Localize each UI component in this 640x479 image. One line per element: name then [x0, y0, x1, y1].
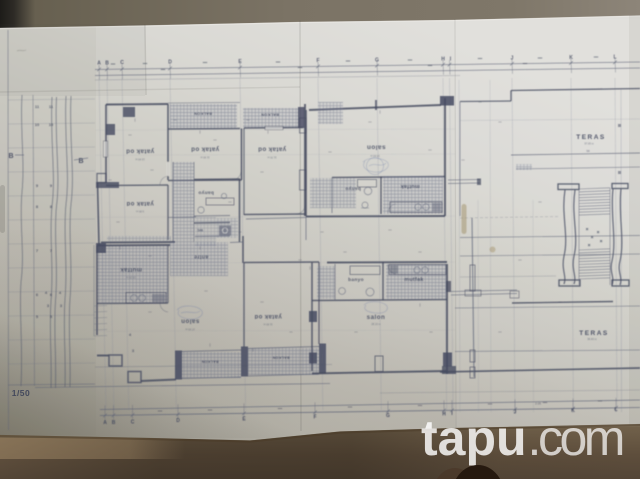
svg-text:TERAS: TERAS: [576, 134, 606, 141]
svg-text:H: H: [441, 57, 445, 63]
svg-text:36.40 m: 36.40 m: [587, 337, 596, 341]
svg-text:B: B: [8, 153, 13, 160]
svg-text:yatak od: yatak od: [258, 146, 286, 153]
svg-text:BALKON: BALKON: [194, 111, 212, 115]
svg-text:A: A: [97, 61, 101, 67]
svg-text:K: K: [569, 55, 573, 61]
svg-text:D: D: [176, 418, 180, 424]
svg-text:12.40 m: 12.40 m: [135, 158, 144, 162]
svg-text:F: F: [313, 415, 316, 421]
svg-text:D: D: [168, 60, 172, 66]
svg-text:10: 10: [49, 122, 54, 127]
svg-text:G: G: [375, 57, 379, 63]
svg-text:L: L: [613, 55, 616, 61]
svg-text:banyo: banyo: [198, 190, 214, 196]
svg-text:F: F: [316, 58, 319, 64]
svg-text:C: C: [131, 419, 135, 425]
svg-text:banyo: banyo: [345, 186, 361, 192]
svg-text:B: B: [105, 60, 109, 66]
svg-text:yatak od: yatak od: [126, 200, 154, 206]
svg-text:11.70 m: 11.70 m: [267, 156, 276, 160]
svg-text:10.20 m: 10.20 m: [126, 276, 135, 280]
svg-text:mutfak: mutfak: [400, 183, 419, 189]
svg-text:banyo: banyo: [348, 277, 364, 283]
svg-text:9.80 m: 9.80 m: [136, 210, 144, 214]
svg-text:antre: antre: [194, 253, 209, 259]
svg-text:1/50: 1/50: [12, 388, 31, 398]
svg-text:BALKON: BALKON: [272, 355, 289, 359]
svg-text:58: 58: [586, 149, 590, 153]
svg-text:J: J: [511, 56, 514, 62]
svg-text:27.80 m: 27.80 m: [185, 328, 194, 332]
svg-text:yatak od: yatak od: [191, 146, 219, 153]
svg-text:mutfak: mutfak: [404, 277, 423, 283]
svg-text:yatak od: yatak od: [126, 148, 154, 155]
svg-text:37.05 m: 37.05 m: [584, 142, 593, 146]
svg-text:TERAS: TERAS: [579, 330, 609, 337]
svg-text:salon: salon: [367, 314, 386, 321]
svg-text:11.90 m: 11.90 m: [200, 156, 209, 160]
svg-text:11.60 m: 11.60 m: [263, 323, 272, 327]
svg-text:mutfak: mutfak: [120, 266, 142, 272]
svg-text:yatak od: yatak od: [254, 313, 282, 319]
svg-text:salon: salon: [366, 144, 385, 151]
svg-text:tapu.com: tapu.com: [421, 410, 623, 466]
svg-text:10: 10: [35, 122, 40, 127]
svg-text:28.10 m: 28.10 m: [371, 322, 380, 326]
svg-text:G: G: [386, 413, 390, 419]
svg-text:A: A: [103, 420, 107, 426]
svg-text:BALKON: BALKON: [201, 359, 218, 363]
svg-text:BALKON: BALKON: [261, 112, 279, 116]
svg-text:2.05: 2.05: [535, 402, 541, 406]
svg-text:C: C: [120, 60, 124, 66]
svg-text:B: B: [112, 420, 116, 426]
